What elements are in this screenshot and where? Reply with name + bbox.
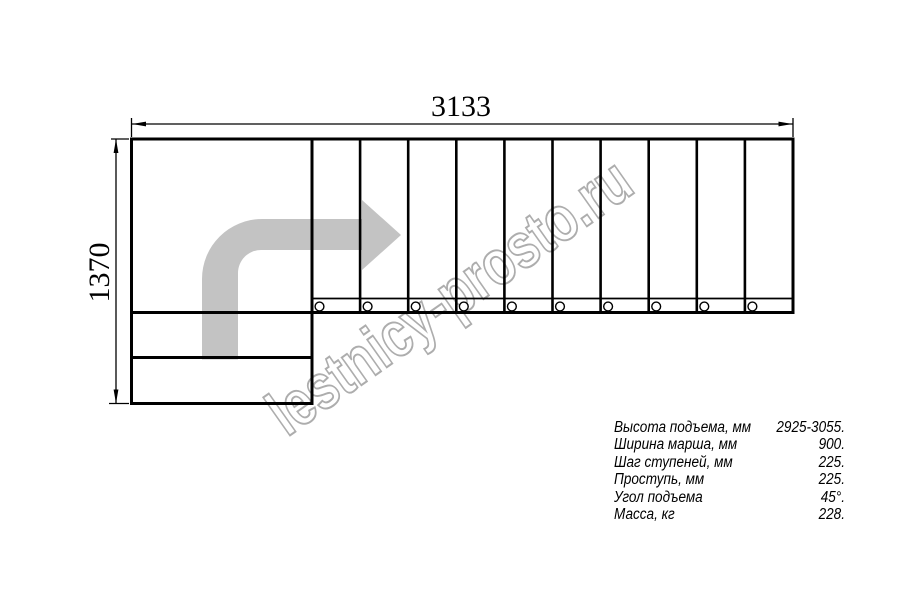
svg-text:3133: 3133	[431, 90, 491, 123]
svg-text:1370: 1370	[83, 243, 116, 303]
